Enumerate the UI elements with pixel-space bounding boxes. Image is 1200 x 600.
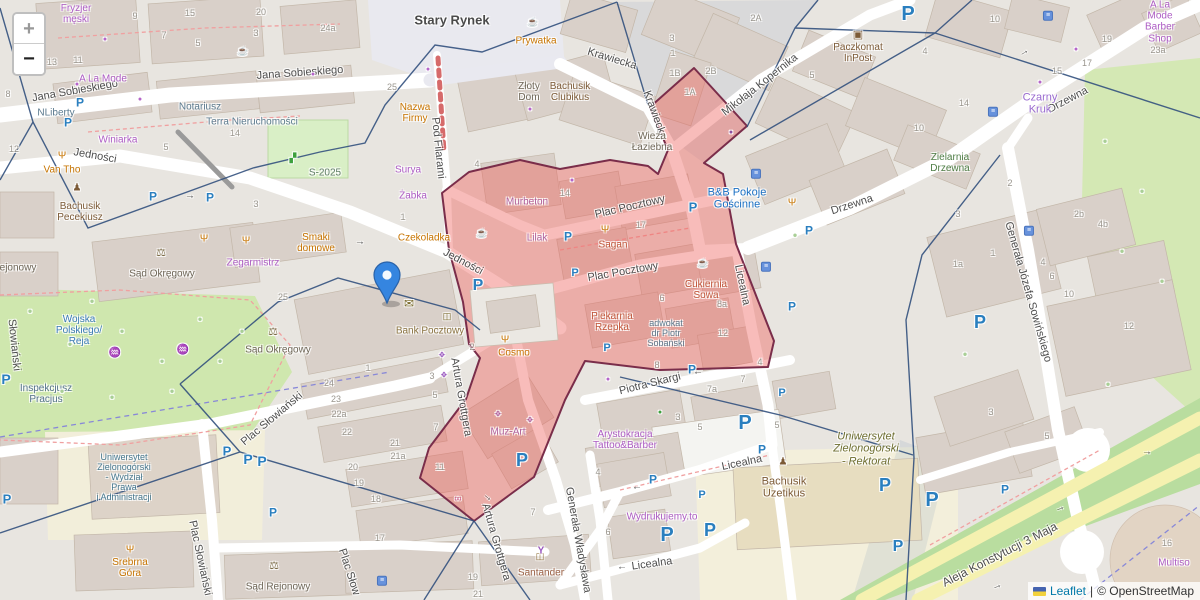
map-canvas[interactable]: Stary RynekJana SobieskiegoJana Sobieski… — [0, 0, 1200, 600]
zoom-out-button[interactable]: − — [14, 44, 44, 74]
map-tiles — [0, 0, 1200, 600]
leaflet-link[interactable]: Leaflet — [1050, 584, 1086, 598]
ukraine-flag-icon — [1033, 587, 1046, 596]
attribution-separator: | — [1090, 584, 1093, 598]
park-area — [0, 288, 292, 448]
selection-hole — [470, 283, 558, 347]
attribution-bar: Leaflet | © OpenStreetMap — [1028, 582, 1200, 600]
zoom-in-button[interactable]: + — [14, 14, 44, 44]
zoom-control: + − — [12, 12, 46, 76]
openstreetmap-link[interactable]: © OpenStreetMap — [1097, 584, 1194, 598]
